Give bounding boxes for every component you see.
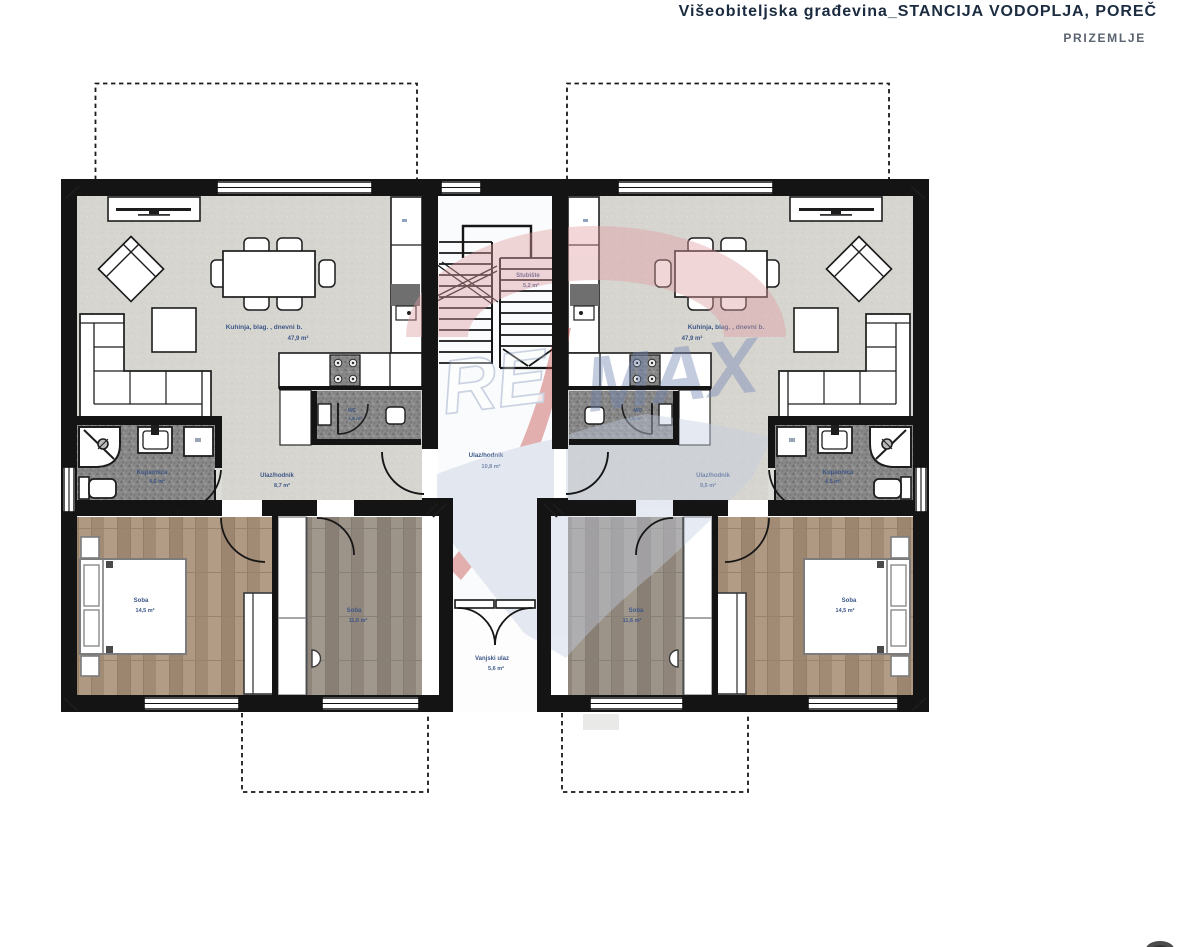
svg-text:Kupaonica: Kupaonica (137, 470, 168, 476)
svg-text:47,9 m²: 47,9 m² (288, 335, 309, 342)
svg-text:Soba: Soba (842, 598, 857, 604)
svg-text:RE: RE (437, 333, 554, 431)
svg-text:14,5 m²: 14,5 m² (836, 607, 855, 614)
svg-text:Soba: Soba (629, 608, 644, 614)
svg-text:Kuhinja, blag. , dnevni b.: Kuhinja, blag. , dnevni b. (226, 324, 303, 331)
svg-text:5,6 m²: 5,6 m² (488, 665, 504, 672)
svg-text:4,5 m²: 4,5 m² (825, 478, 841, 485)
svg-text:1,8 m²: 1,8 m² (348, 416, 362, 422)
svg-text:PRIZEMLJE: PRIZEMLJE (1063, 31, 1146, 45)
svg-text:Kupaonica: Kupaonica (823, 470, 854, 476)
svg-text:Soba: Soba (347, 608, 362, 614)
svg-text:4,5 m²: 4,5 m² (149, 478, 165, 485)
svg-text:Vanjski ulaz: Vanjski ulaz (475, 656, 509, 662)
svg-text:11,6 m²: 11,6 m² (623, 617, 642, 624)
svg-text:Soba: Soba (134, 598, 149, 604)
svg-text:WC: WC (348, 408, 357, 414)
svg-text:14,5 m²: 14,5 m² (136, 607, 155, 614)
svg-text:Ulaz/hodnik: Ulaz/hodnik (260, 473, 294, 479)
svg-text:Višeobiteljska građevina_STANC: Višeobiteljska građevina_STANCIJA VODOPL… (679, 1, 1157, 20)
svg-text:8,7 m²: 8,7 m² (274, 482, 290, 489)
svg-text:11,6 m²: 11,6 m² (349, 617, 368, 624)
